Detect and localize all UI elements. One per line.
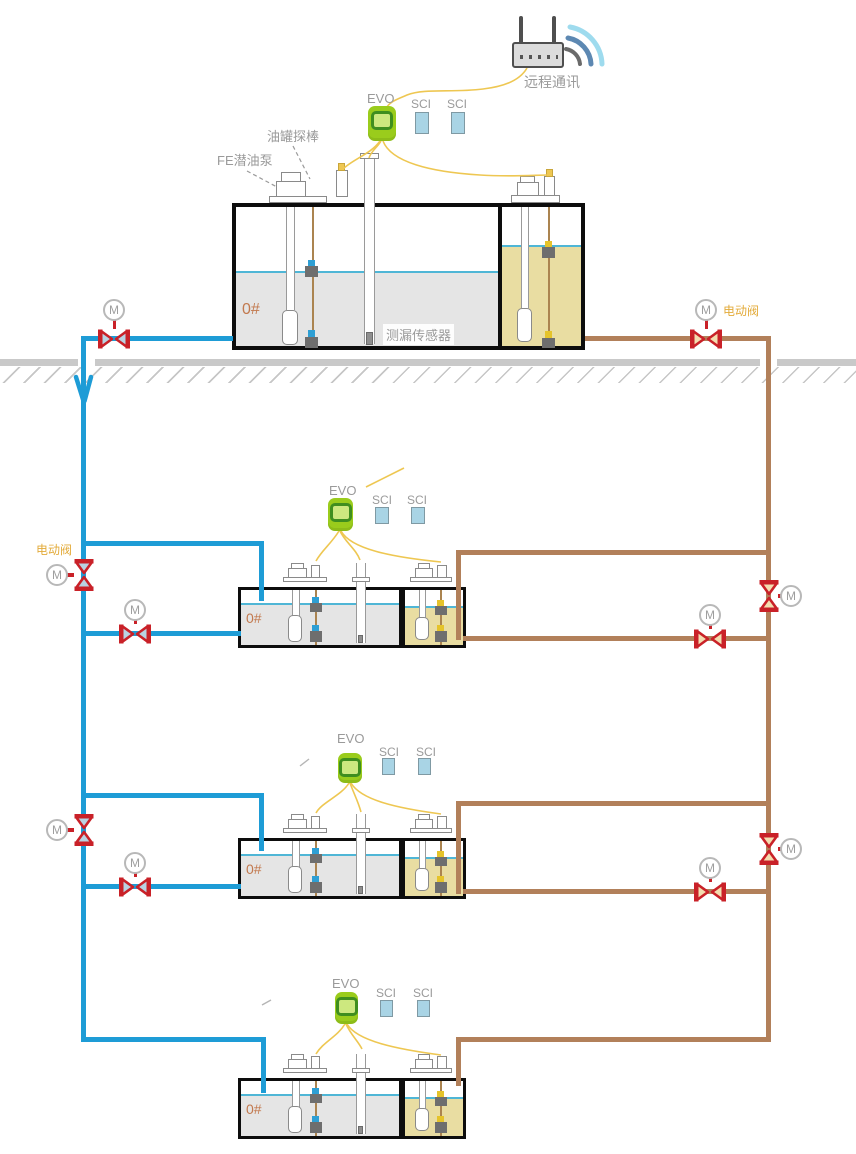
pipe-blue-tier3-branch: [81, 884, 241, 889]
motor-valve-icon: [752, 838, 786, 860]
pump-motor-icon-right: [517, 182, 539, 196]
probe-float: [310, 603, 322, 612]
motor-valve-label: 电动阀: [36, 543, 72, 557]
oil-level-right: [405, 857, 463, 896]
motor-valve-icon: [67, 564, 101, 586]
probe-riser-icon-right: [437, 1056, 447, 1069]
router-antenna-icon: [519, 16, 523, 44]
probe-bottom-anchor: [310, 882, 322, 893]
fuel-grade-label: 0#: [246, 610, 262, 626]
pump-motor-icon: [288, 819, 307, 829]
probe-riser-icon: [311, 816, 320, 829]
pump-column-tube-right: [521, 207, 529, 308]
sci-label: SCI: [407, 493, 427, 507]
leak-sensor-tip: [358, 635, 363, 643]
pump-motor-icon-right: [415, 1059, 433, 1069]
fe-pump-label: FE潜油泵: [217, 153, 273, 169]
motor-label: M: [705, 861, 715, 875]
leak-sensor-collar: [360, 153, 379, 159]
manhole-plate-right: [511, 195, 560, 203]
leak-sensor-tip: [358, 886, 363, 894]
pump-motor-cap: [291, 563, 304, 569]
submersible-pump-icon: [288, 866, 302, 893]
sci-module-icon: [415, 112, 429, 134]
pipe-blue-tier3-fill-h: [81, 793, 264, 798]
sci-module-icon: [411, 507, 425, 524]
pipe-brown-tier3-fill-v: [456, 801, 461, 894]
oil-level-right: [405, 1097, 463, 1136]
probe-bottom-cap: [308, 330, 315, 337]
evo1-wire-right: [383, 141, 548, 176]
pump-column-tube-right: [419, 1081, 426, 1109]
pipe-brown-tier3-fill-h: [459, 801, 771, 806]
pipe-brown-tier4-h: [456, 1037, 771, 1042]
pump-motor-cap: [291, 1054, 304, 1060]
motor-valve-icon: [97, 328, 131, 350]
probe-connector-right: [546, 169, 553, 177]
probe-bottom-anchor-right: [435, 631, 447, 642]
pump-motor-cap-right: [418, 814, 430, 820]
leak-sensor-label: 测漏传感器: [383, 324, 454, 345]
submersible-pump-icon-right: [517, 308, 532, 342]
tank-group-3: 0#: [238, 808, 468, 903]
pipe-blue-tier4-v: [261, 1037, 266, 1093]
probe-float-right: [435, 857, 447, 866]
pipe-blue-tier3-fill-v: [259, 793, 264, 851]
probe-bottom-anchor-right: [542, 338, 555, 348]
probe-float-right: [542, 247, 555, 258]
probe-float-right: [435, 1097, 447, 1106]
submersible-pump-icon-right: [415, 617, 429, 640]
pump-motor-cap: [281, 172, 301, 182]
pipe-brown-tier2-fill-v: [456, 550, 461, 640]
evo2-uplink-wire: [366, 468, 404, 487]
pump-column-tube-right: [419, 590, 426, 618]
pipe-brown-tier2-fill-h: [459, 550, 771, 555]
probe-float: [310, 854, 322, 863]
pump-motor-cap-right: [418, 563, 430, 569]
sci-label: SCI: [447, 97, 467, 111]
pipe-blue-tier2-branch: [81, 631, 241, 636]
submersible-pump-icon-right: [415, 868, 429, 891]
sci-module-icon: [375, 507, 389, 524]
fuel-grade-label: 0#: [242, 301, 260, 319]
pump-motor-cap: [291, 814, 304, 820]
probe-bottom-anchor: [305, 337, 318, 348]
leak-sensor-tube-icon: [356, 1054, 366, 1134]
probe-riser-icon: [336, 170, 348, 197]
submersible-pump-icon: [288, 615, 302, 642]
motor-valve-icon: [693, 881, 727, 903]
leak-sensor-tube-icon: [364, 158, 375, 344]
motor-label: M: [705, 608, 715, 622]
sci-module-icon: [451, 112, 465, 134]
evo-label: EVO: [329, 483, 356, 499]
evo-label: EVO: [332, 976, 359, 992]
evo4-uplink-dash: [262, 1000, 271, 1005]
motor-label: M: [130, 856, 140, 870]
motor-actuator: M: [695, 299, 717, 321]
probe-bottom-anchor: [310, 631, 322, 642]
motor-actuator: M: [103, 299, 125, 321]
router-antenna-icon: [552, 16, 556, 44]
pump-motor-cap-right: [418, 1054, 430, 1060]
probe-riser-icon-right: [544, 176, 555, 196]
leak-sensor-tube-icon: [356, 563, 366, 643]
motor-label: M: [109, 303, 119, 317]
diagram-canvas: 0# 测漏传感器 0#: [0, 0, 856, 1154]
probe-bottom-anchor-right: [435, 1122, 447, 1133]
probe-float: [305, 266, 318, 277]
evo-controller-icon: [335, 992, 358, 1024]
tank-group-4: 0#: [238, 1048, 468, 1143]
pump-column-tube: [292, 590, 300, 616]
fe-pump-leader-line: [247, 171, 277, 187]
probe-bottom-anchor-right: [435, 882, 447, 893]
ground-line: [95, 359, 760, 366]
motor-valve-icon: [67, 819, 101, 841]
motor-valve-icon: [689, 328, 723, 350]
pump-motor-icon-right: [415, 819, 433, 829]
tank-group-2: 0#: [238, 557, 468, 652]
motor-label: M: [52, 823, 62, 837]
pump-motor-icon: [288, 1059, 307, 1069]
remote-comm-label: 远程通讯: [524, 74, 580, 91]
probe-float: [310, 1094, 322, 1103]
pump-column-tube: [292, 1081, 300, 1107]
submersible-pump-icon: [282, 310, 298, 345]
probe-bottom-cap-right: [545, 331, 552, 338]
ground-hatching: [0, 367, 856, 383]
sci-module-icon: [382, 758, 395, 775]
oil-level-right: [405, 606, 463, 645]
evo4-wire-mid: [346, 1024, 362, 1049]
leak-sensor-flange: [352, 577, 370, 582]
pump-column-tube: [292, 841, 300, 867]
wifi-signal-icon: [566, 27, 602, 64]
motor-label: M: [786, 589, 796, 603]
pump-motor-cap-right: [520, 176, 535, 183]
motor-valve-icon: [118, 623, 152, 645]
motor-valve-icon: [118, 876, 152, 898]
motor-valve-icon: [693, 628, 727, 650]
evo-label: EVO: [367, 91, 394, 107]
pipe-brown-main-vertical: [766, 336, 771, 1042]
leak-sensor-flange: [352, 1068, 370, 1073]
pipe-blue-main-vertical: [81, 336, 86, 1042]
probe-riser-icon: [311, 565, 320, 578]
pipe-blue-tier4-h: [81, 1037, 266, 1042]
ground-line: [777, 359, 856, 366]
motor-actuator: M: [699, 604, 721, 626]
submersible-pump-icon: [288, 1106, 302, 1133]
sci-module-icon: [418, 758, 431, 775]
sci-module-icon: [417, 1000, 430, 1017]
pump-column-tube: [286, 207, 295, 310]
fuel-grade-label: 0#: [246, 1101, 262, 1117]
motor-actuator: M: [699, 857, 721, 879]
motor-actuator: M: [124, 599, 146, 621]
leak-sensor-flange: [352, 828, 370, 833]
motor-actuator: M: [124, 852, 146, 874]
motor-actuator: M: [46, 564, 68, 586]
pipe-blue-tier2-fill-v: [259, 541, 264, 601]
submersible-pump-icon-right: [415, 1108, 429, 1131]
probe-riser-icon-right: [437, 565, 447, 578]
sci-label: SCI: [372, 493, 392, 507]
evo-controller-icon: [328, 498, 353, 531]
evo2-wire-mid: [340, 531, 360, 560]
motor-valve-icon: [752, 585, 786, 607]
oil-level-right: [502, 245, 581, 346]
sci-label: SCI: [411, 97, 431, 111]
manhole-plate: [269, 196, 327, 203]
probe-float-right: [435, 606, 447, 615]
evo-controller-icon: [368, 106, 396, 141]
pump-motor-icon: [288, 568, 307, 578]
motor-label: M: [786, 842, 796, 856]
sci-module-icon: [380, 1000, 393, 1017]
motor-label: M: [701, 303, 711, 317]
tank-probe-label: 油罐探棒: [267, 129, 319, 145]
pump-motor-icon-right: [415, 568, 433, 578]
pump-motor-icon: [276, 181, 306, 197]
leak-sensor-tip: [366, 332, 373, 345]
fuel-grade-label: 0#: [246, 861, 262, 877]
pipe-brown-tier4-v: [456, 1037, 461, 1086]
probe-riser-icon-right: [437, 816, 447, 829]
leak-sensor-tip: [358, 1126, 363, 1134]
evo-controller-icon: [338, 753, 362, 783]
pump-column-tube-right: [419, 841, 426, 869]
motor-valve-label: 电动阀: [723, 304, 759, 318]
tank-probe-wire: [312, 207, 314, 347]
pipe-blue-tier2-fill-h: [81, 541, 264, 546]
probe-connector: [338, 163, 345, 171]
evo3-uplink-dash: [300, 759, 309, 766]
motor-actuator: M: [46, 819, 68, 841]
leak-sensor-tube-icon: [356, 814, 366, 894]
pipe-brown-tier1-horizontal: [585, 336, 771, 341]
ground-line: [0, 359, 78, 366]
sci-label: SCI: [413, 986, 433, 1000]
router-led-dots: [520, 55, 558, 59]
tank-probe-wire-right: [548, 207, 550, 348]
sci-label: SCI: [376, 986, 396, 1000]
motor-label: M: [52, 568, 62, 582]
probe-riser-icon: [311, 1056, 320, 1069]
motor-label: M: [130, 603, 140, 617]
evo-label: EVO: [337, 731, 364, 747]
probe-bottom-anchor: [310, 1122, 322, 1133]
